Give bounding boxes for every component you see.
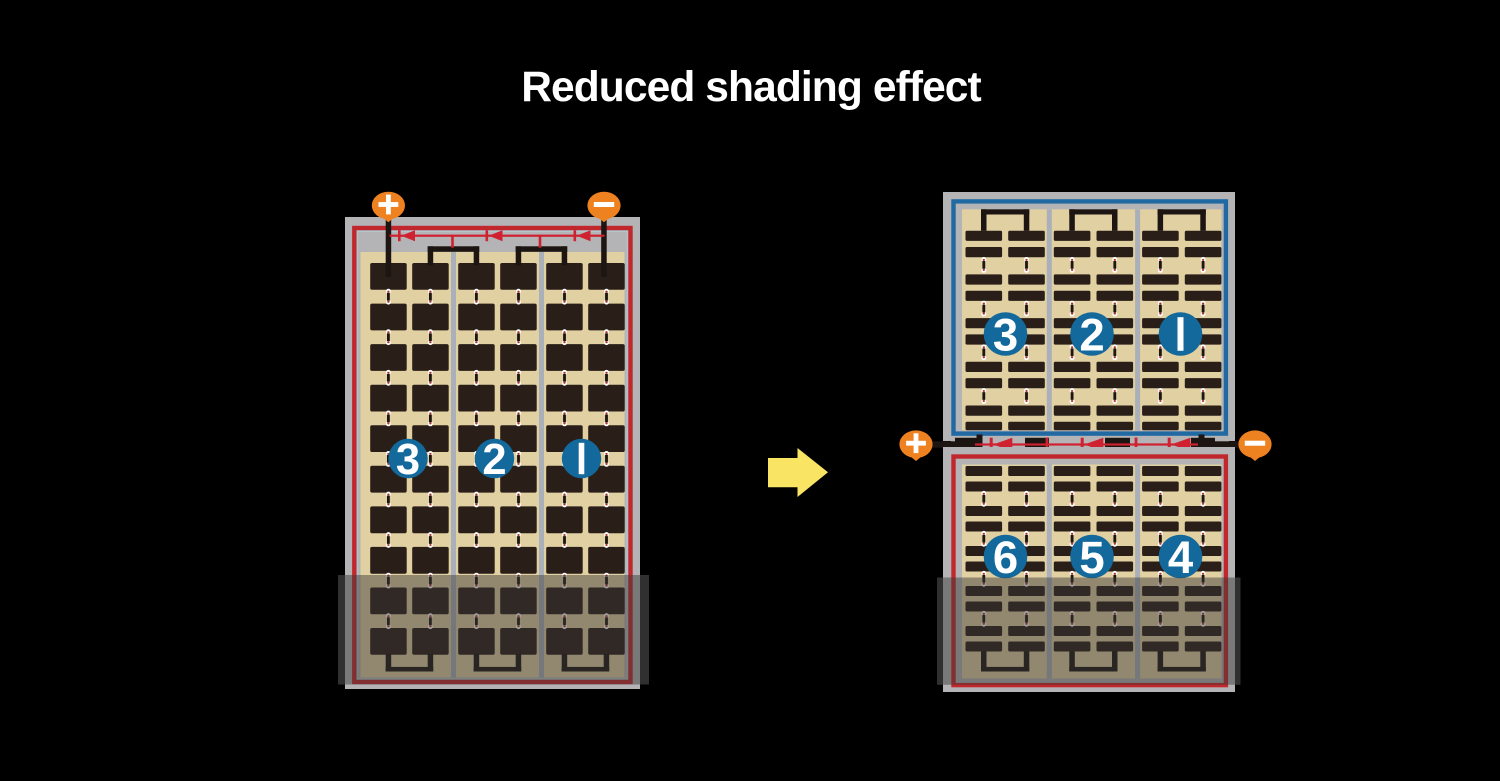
svg-text:3: 3	[993, 309, 1018, 360]
svg-text:2: 2	[1079, 309, 1104, 360]
svg-text:6: 6	[993, 532, 1018, 583]
svg-text:5: 5	[1079, 532, 1104, 583]
svg-text:2: 2	[482, 436, 506, 484]
svg-text:3: 3	[396, 436, 420, 484]
svg-text:4: 4	[1168, 532, 1194, 583]
svg-text:Reduced shading effect: Reduced shading effect	[521, 64, 981, 111]
